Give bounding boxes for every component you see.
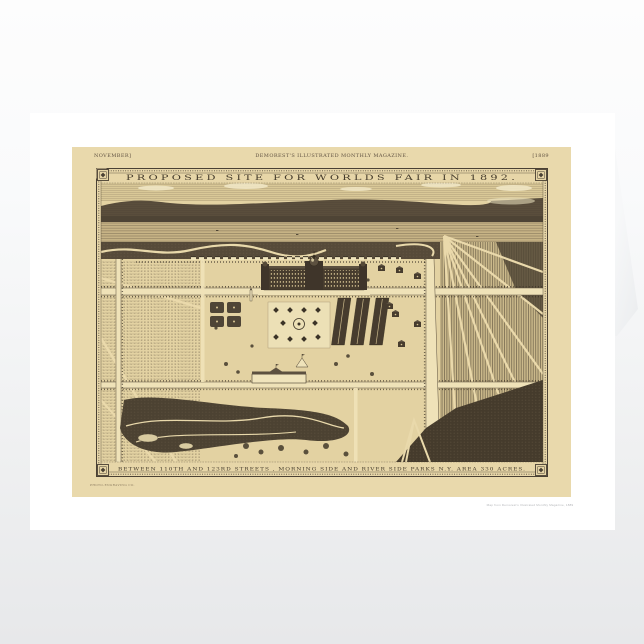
greeting-card-front: NOVEMBER] DEMOREST'S ILLUSTRATED MONTHLY…: [30, 113, 615, 530]
exhibition-halls: [331, 298, 389, 345]
parterre-gardens: [268, 302, 330, 348]
obelisk: [250, 288, 252, 302]
map-title: PROPOSED SITE FOR WORLDS FAIR IN 1892.: [126, 174, 518, 182]
header-magazine-title: DEMOREST'S ILLUSTRATED MONTHLY MAGAZINE.: [255, 153, 408, 159]
fine-print-credit: Map from Demorest's Illustrated Monthly …: [460, 503, 600, 507]
birdseye-map-engraving: PROPOSED SITE FOR WORLDS FAIR IN 1892. B…: [96, 168, 548, 477]
sky-band: [101, 183, 543, 202]
map-frame: PROPOSED SITE FOR WORLDS FAIR IN 1892. B…: [96, 168, 548, 477]
engraver-credit: PHOTO-ENGRAVING CO.: [90, 483, 135, 487]
river-band: [101, 222, 543, 244]
header-month: NOVEMBER]: [94, 153, 131, 159]
header-year: [1889: [532, 153, 549, 159]
map-caption: BETWEEN 110TH AND 123RD STREETS , MORNIN…: [118, 467, 526, 473]
map-print: NOVEMBER] DEMOREST'S ILLUSTRATED MONTHLY…: [72, 147, 571, 497]
magazine-header: NOVEMBER] DEMOREST'S ILLUSTRATED MONTHLY…: [72, 151, 571, 161]
product-photo-scene: NOVEMBER] DEMOREST'S ILLUSTRATED MONTHLY…: [0, 0, 644, 644]
map-interior: [96, 168, 543, 462]
